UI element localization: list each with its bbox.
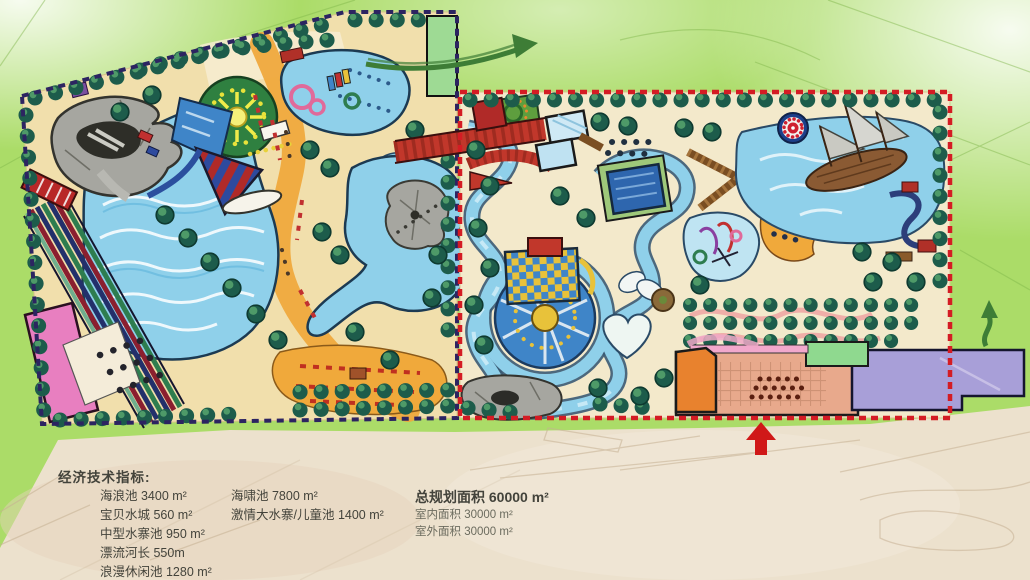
orange-building	[676, 348, 716, 412]
kiosk	[350, 368, 366, 379]
plan-drawing	[0, 0, 1030, 580]
target-pool	[778, 113, 808, 143]
slide-doodle-pool	[684, 213, 759, 281]
green-pavilion	[806, 342, 868, 366]
right-park-zone	[395, 88, 1024, 420]
plunge-pool	[536, 139, 576, 171]
spa-pond	[652, 289, 674, 311]
service-building	[427, 16, 457, 96]
tsunami-pool	[598, 155, 672, 221]
waterpark-master-plan: 经济技术指标: 海浪池 3400 m² 宝贝水城 560 m² 中型水寨池 95…	[0, 0, 1030, 580]
